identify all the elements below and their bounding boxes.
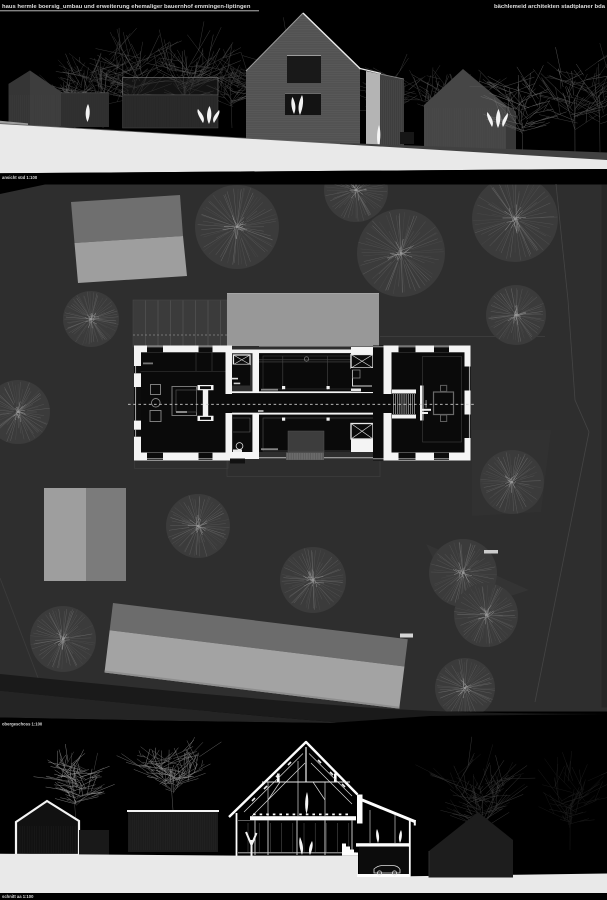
svg-text:bächlemeid architekten stadtpl: bächlemeid architekten stadtplaner bda — [494, 4, 606, 10]
svg-text:obergeschoss 1:100: obergeschoss 1:100 — [2, 722, 43, 727]
svg-text:schnitt aa 1:100: schnitt aa 1:100 — [2, 894, 34, 899]
svg-text:ansicht süd 1:100: ansicht süd 1:100 — [2, 175, 38, 180]
svg-text:haus hermle boersig_umbau und: haus hermle boersig_umbau und erweiterun… — [2, 4, 251, 10]
